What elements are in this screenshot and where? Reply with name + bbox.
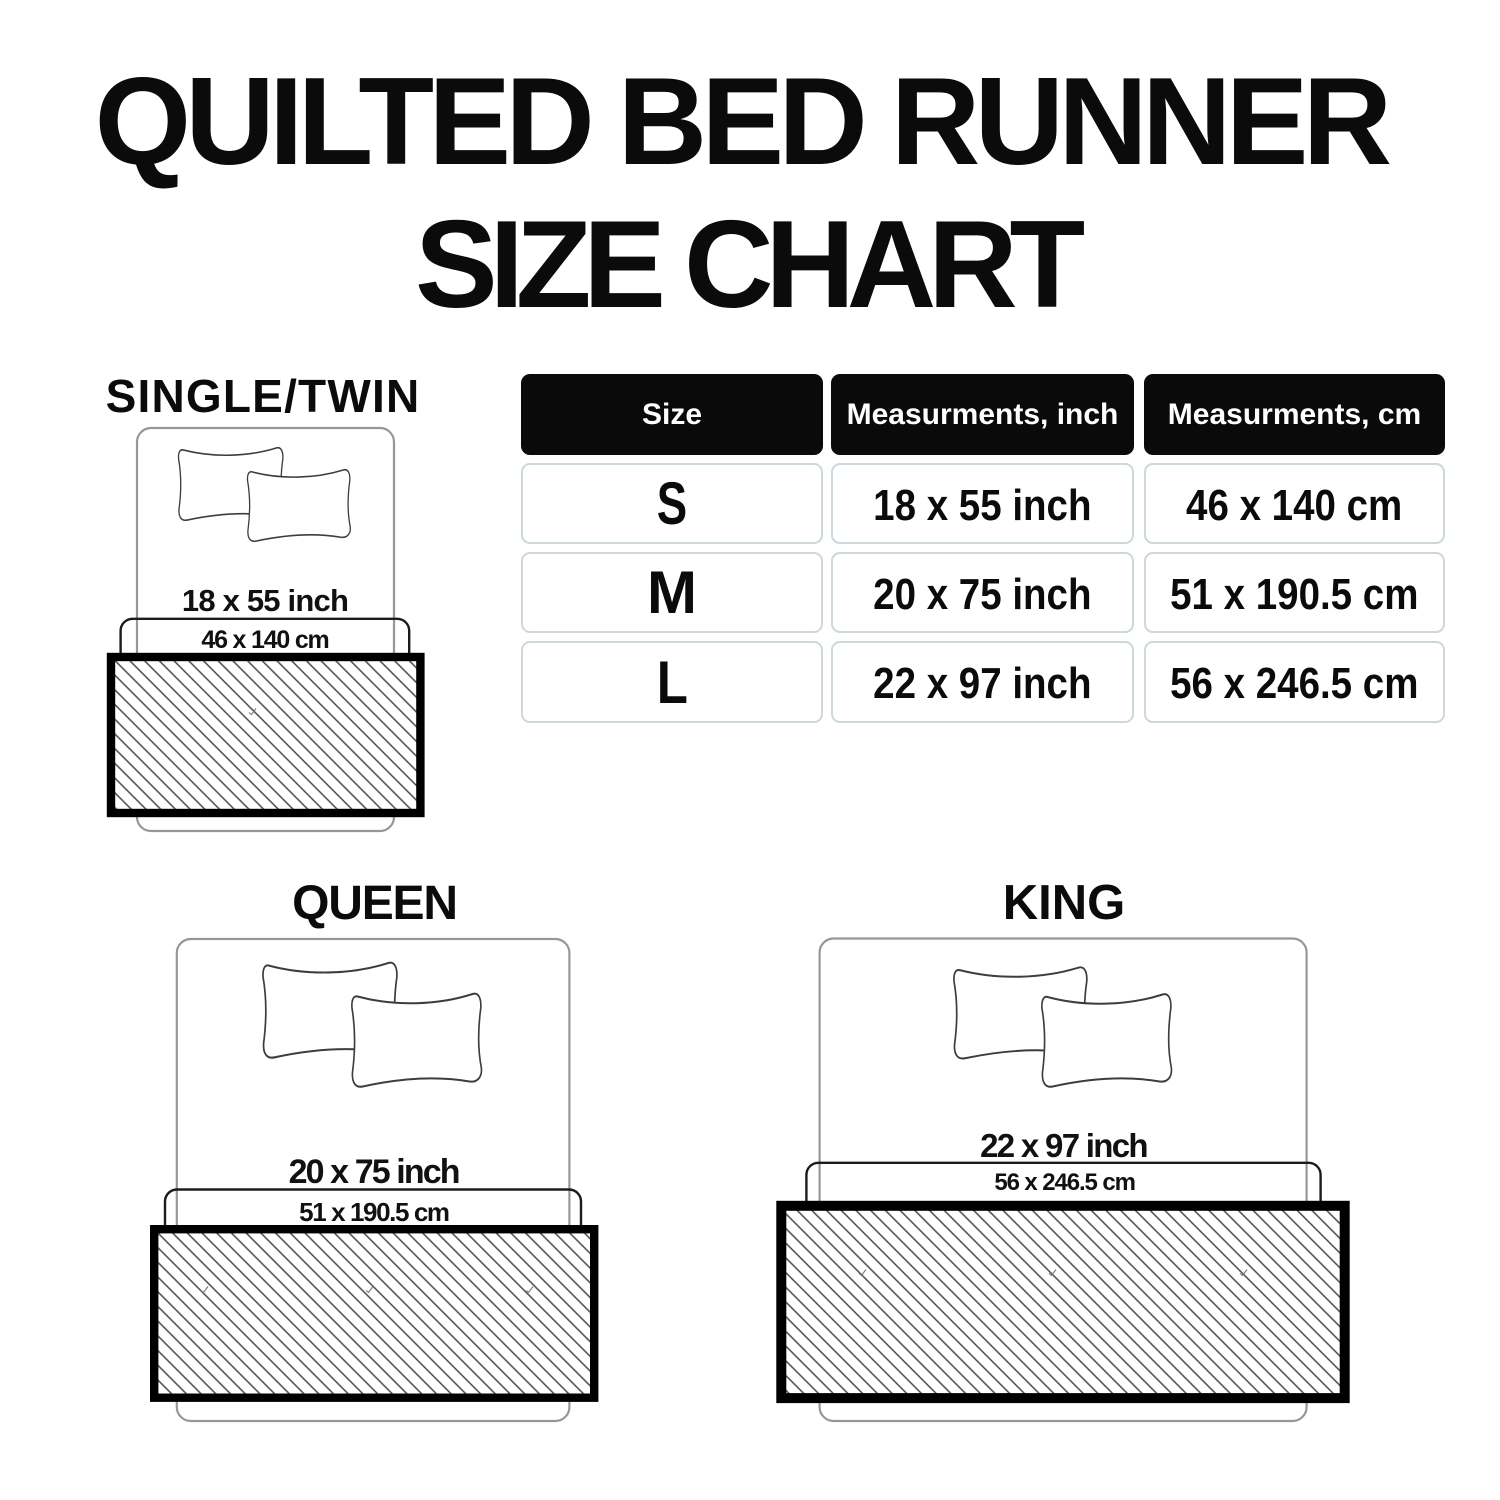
- svg-text:18 x 55 inch: 18 x 55 inch: [182, 583, 348, 618]
- svg-text:KING: KING: [1003, 876, 1126, 930]
- svg-text:46 x 140 cm: 46 x 140 cm: [201, 626, 328, 654]
- svg-text:56 x 246.5 cm: 56 x 246.5 cm: [994, 1169, 1135, 1196]
- svg-text:20 x 75 inch: 20 x 75 inch: [289, 1153, 459, 1191]
- svg-text:51 x 190.5 cm: 51 x 190.5 cm: [299, 1197, 449, 1227]
- svg-text:22 x 97 inch: 22 x 97 inch: [980, 1127, 1147, 1164]
- svg-text:SINGLE/TWIN: SINGLE/TWIN: [106, 370, 421, 422]
- svg-text:QUEEN: QUEEN: [292, 877, 457, 930]
